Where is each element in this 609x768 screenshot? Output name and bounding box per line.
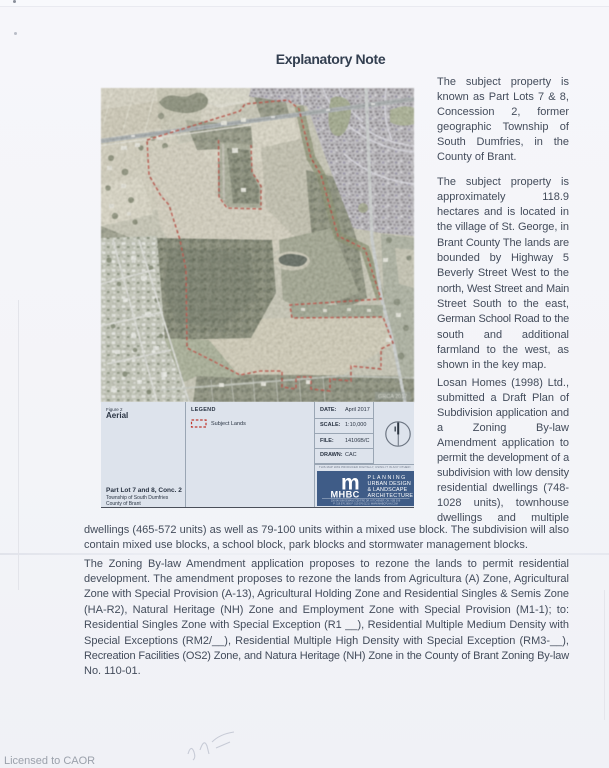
svg-text:P: 519.576.3650 F: 519.576.01: P: 519.576.3650 F: 519.576.0121 | WWW.MH… — [333, 503, 397, 506]
svg-text:ARCHITECTURE: ARCHITECTURE — [367, 493, 413, 499]
svg-text:MHBC: MHBC — [330, 490, 359, 500]
